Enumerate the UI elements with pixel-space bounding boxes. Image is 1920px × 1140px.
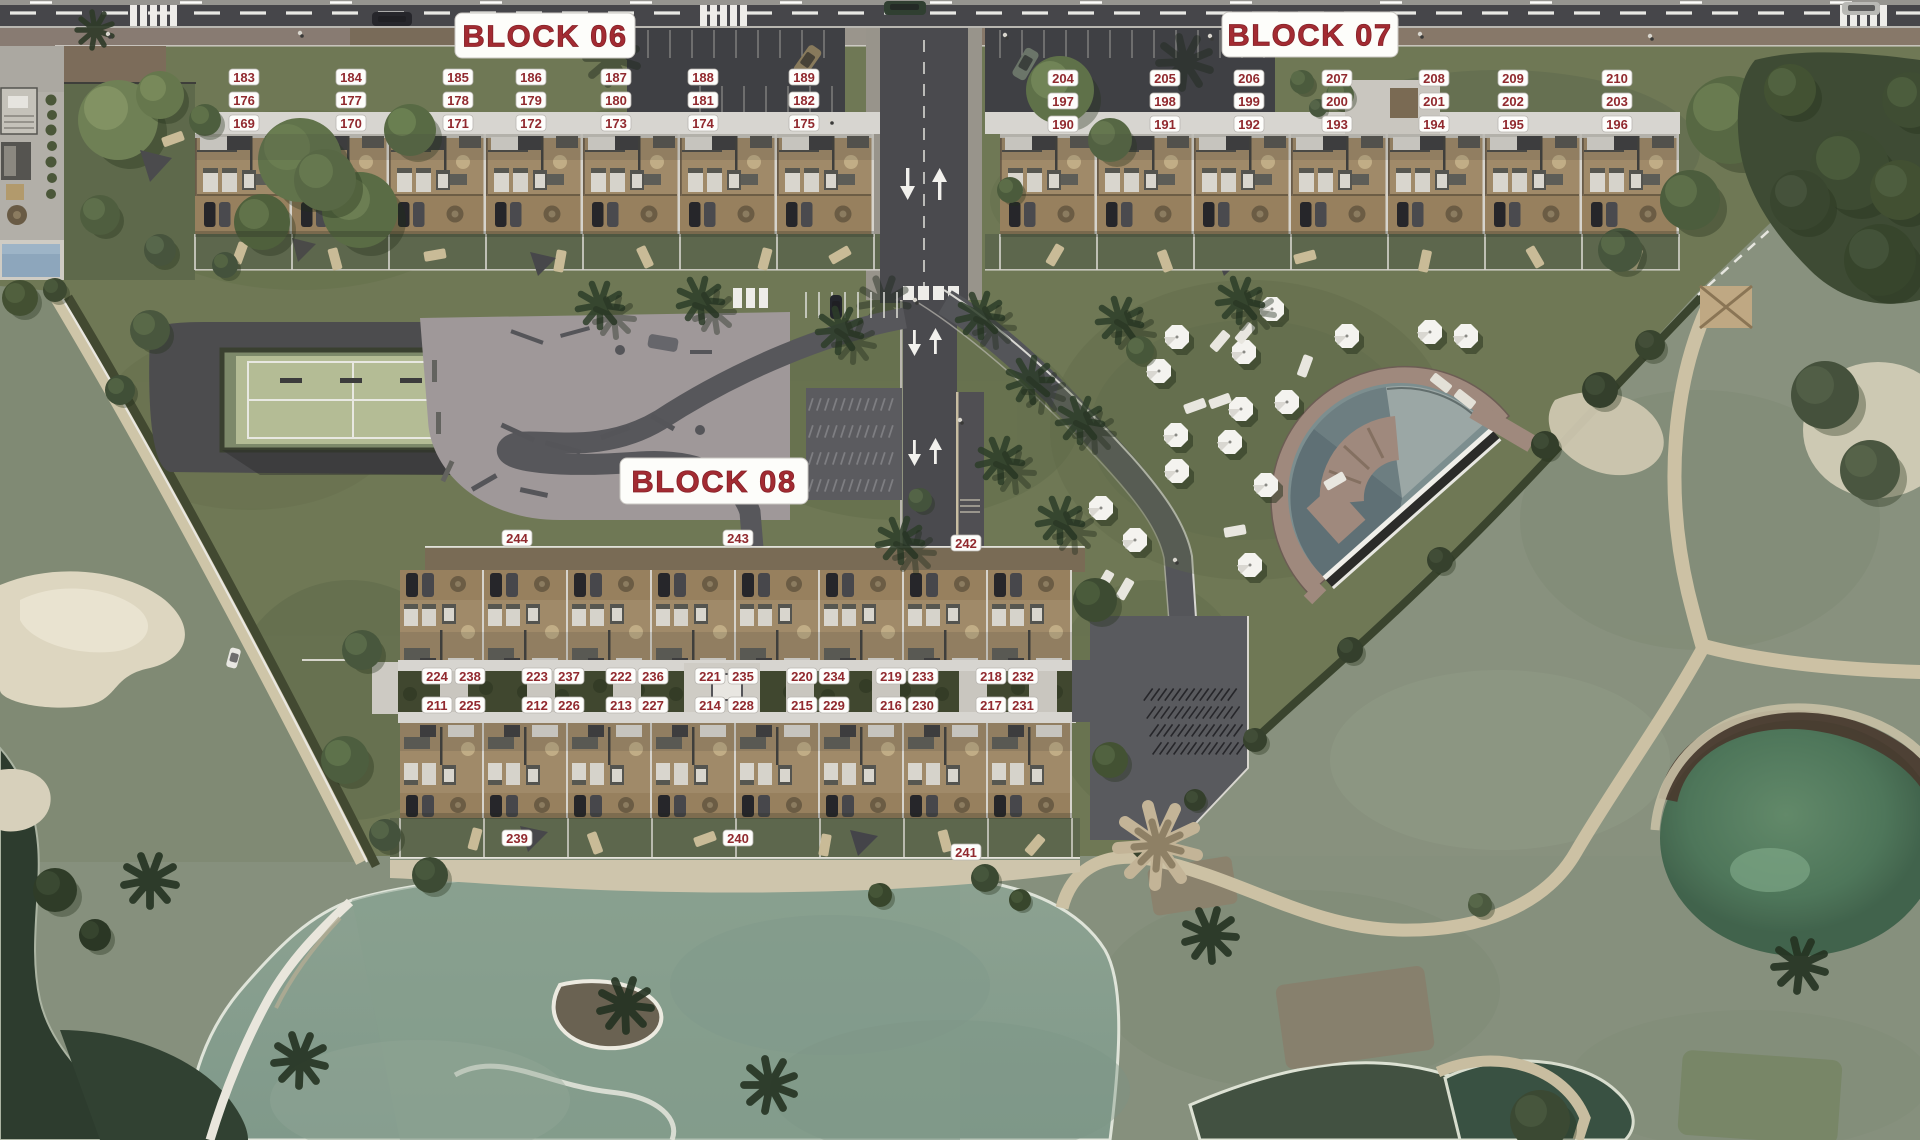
svg-text:176: 176 <box>233 93 255 108</box>
svg-text:190: 190 <box>1052 117 1074 132</box>
svg-text:230: 230 <box>912 698 934 713</box>
svg-text:181: 181 <box>692 93 714 108</box>
svg-text:173: 173 <box>605 116 627 131</box>
svg-text:211: 211 <box>427 698 448 713</box>
svg-text:178: 178 <box>447 93 469 108</box>
svg-text:182: 182 <box>793 93 815 108</box>
svg-text:214: 214 <box>699 698 721 713</box>
svg-text:169: 169 <box>233 116 255 131</box>
svg-text:222: 222 <box>610 669 632 684</box>
svg-text:219: 219 <box>880 669 902 684</box>
svg-text:196: 196 <box>1606 117 1628 132</box>
svg-text:189: 189 <box>793 70 815 85</box>
svg-text:236: 236 <box>642 669 664 684</box>
svg-text:206: 206 <box>1238 71 1260 86</box>
svg-text:194: 194 <box>1423 117 1445 132</box>
svg-text:180: 180 <box>605 93 627 108</box>
svg-text:184: 184 <box>340 70 362 85</box>
svg-text:237: 237 <box>558 669 580 684</box>
svg-text:207: 207 <box>1326 71 1348 86</box>
svg-text:205: 205 <box>1154 71 1176 86</box>
svg-text:BLOCK 06: BLOCK 06 <box>462 19 627 54</box>
svg-text:225: 225 <box>459 698 481 713</box>
svg-text:229: 229 <box>823 698 845 713</box>
svg-text:233: 233 <box>912 669 934 684</box>
svg-text:239: 239 <box>506 831 528 846</box>
svg-text:198: 198 <box>1154 94 1176 109</box>
svg-text:175: 175 <box>793 116 815 131</box>
svg-text:BLOCK 08: BLOCK 08 <box>631 464 796 499</box>
svg-text:201: 201 <box>1423 94 1445 109</box>
svg-text:212: 212 <box>526 698 548 713</box>
svg-text:227: 227 <box>642 698 664 713</box>
svg-text:242: 242 <box>955 536 977 551</box>
svg-text:228: 228 <box>732 698 754 713</box>
svg-text:218: 218 <box>980 669 1002 684</box>
svg-text:200: 200 <box>1326 94 1348 109</box>
svg-text:187: 187 <box>605 70 627 85</box>
svg-text:243: 243 <box>727 531 749 546</box>
svg-text:223: 223 <box>526 669 548 684</box>
svg-text:186: 186 <box>520 70 542 85</box>
svg-text:213: 213 <box>610 698 632 713</box>
svg-text:172: 172 <box>520 116 542 131</box>
svg-text:226: 226 <box>558 698 580 713</box>
svg-text:224: 224 <box>426 669 448 684</box>
svg-text:185: 185 <box>447 70 469 85</box>
svg-text:216: 216 <box>880 698 902 713</box>
svg-text:170: 170 <box>340 116 362 131</box>
svg-text:238: 238 <box>459 669 481 684</box>
svg-text:192: 192 <box>1238 117 1260 132</box>
svg-text:241: 241 <box>955 845 977 860</box>
svg-text:202: 202 <box>1502 94 1524 109</box>
svg-text:179: 179 <box>520 93 542 108</box>
svg-text:195: 195 <box>1502 117 1524 132</box>
svg-text:215: 215 <box>791 698 813 713</box>
svg-text:232: 232 <box>1012 669 1034 684</box>
svg-text:204: 204 <box>1052 71 1074 86</box>
svg-text:234: 234 <box>823 669 845 684</box>
svg-text:210: 210 <box>1606 71 1628 86</box>
svg-text:BLOCK 07: BLOCK 07 <box>1227 18 1392 53</box>
svg-text:177: 177 <box>340 93 362 108</box>
svg-text:188: 188 <box>692 70 714 85</box>
svg-text:193: 193 <box>1326 117 1348 132</box>
svg-text:244: 244 <box>506 531 528 546</box>
svg-text:191: 191 <box>1154 117 1176 132</box>
svg-text:208: 208 <box>1423 71 1445 86</box>
svg-text:209: 209 <box>1502 71 1524 86</box>
svg-text:203: 203 <box>1606 94 1628 109</box>
svg-text:231: 231 <box>1012 698 1034 713</box>
svg-text:199: 199 <box>1238 94 1260 109</box>
svg-text:235: 235 <box>732 669 754 684</box>
svg-text:183: 183 <box>233 70 255 85</box>
svg-text:174: 174 <box>692 116 714 131</box>
svg-text:221: 221 <box>699 669 721 684</box>
svg-text:217: 217 <box>980 698 1002 713</box>
svg-text:220: 220 <box>791 669 813 684</box>
svg-text:240: 240 <box>727 831 749 846</box>
svg-text:197: 197 <box>1052 94 1074 109</box>
svg-text:171: 171 <box>447 116 469 131</box>
